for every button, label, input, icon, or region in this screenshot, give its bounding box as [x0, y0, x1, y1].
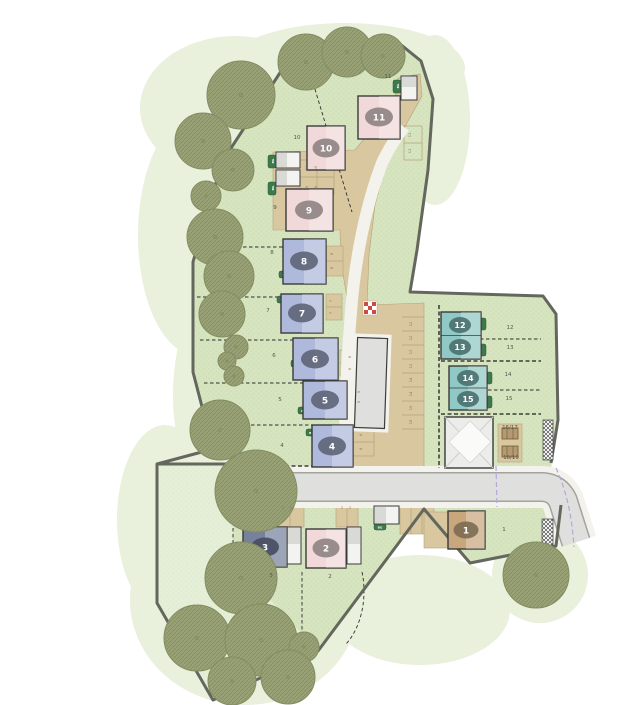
svg-text:5: 5 — [357, 401, 361, 403]
garden-label: 8 — [270, 250, 274, 256]
house-plot-6: 6 — [293, 338, 338, 380]
house-plots-12-13: 12 13 — [441, 312, 481, 359]
plot-number: 11 — [373, 114, 386, 124]
svg-text:13: 13 — [409, 350, 413, 355]
svg-text:2: 2 — [341, 506, 343, 510]
house-plot-8: 8 — [283, 239, 326, 284]
svg-text:2: 2 — [323, 545, 329, 555]
garden-label: 2 — [328, 574, 332, 580]
garden-label: 18/19 — [503, 455, 519, 461]
svg-text:11: 11 — [408, 133, 412, 138]
svg-text:8: 8 — [301, 258, 307, 268]
garage — [276, 170, 300, 186]
site-plan-drawing: BG BG BG BG BG BG BG BG BG BG BG 11 — [0, 0, 640, 705]
store: BG — [393, 80, 401, 93]
svg-text:9: 9 — [306, 207, 312, 217]
svg-text:7: 7 — [299, 310, 305, 320]
svg-text:15: 15 — [462, 395, 474, 404]
garden-label: 5 — [278, 397, 282, 403]
svg-text:12: 12 — [409, 322, 413, 327]
svg-text:13: 13 — [409, 364, 413, 369]
garden-label: 13 — [507, 345, 514, 351]
svg-text:12: 12 — [409, 336, 413, 341]
svg-text:BG: BG — [271, 185, 275, 190]
svg-text:14: 14 — [409, 391, 413, 396]
hatch-strip-road-exit — [542, 519, 553, 545]
tree — [190, 400, 250, 460]
svg-text:3: 3 — [282, 506, 284, 510]
svg-text:10: 10 — [305, 165, 309, 170]
garage — [276, 152, 300, 168]
site-plan: BG BG BG BG BG BG BG BG BG BG BG 11 — [0, 0, 640, 705]
garden-label: 9 — [273, 205, 277, 211]
garden-label: 16/17 — [502, 425, 518, 431]
garden-label: 1 — [502, 527, 506, 533]
hatch-strip-east — [543, 420, 553, 460]
house-plots-14-15: 14 15 — [449, 366, 487, 410]
house-plot-9: 9 — [286, 189, 333, 231]
svg-text:14: 14 — [462, 374, 474, 383]
house-plot-7: 7 — [281, 294, 323, 333]
garden-label: 10 — [294, 135, 301, 141]
store: BG — [268, 155, 276, 168]
tree — [361, 34, 405, 78]
house-plot-10: 10 — [307, 126, 345, 170]
store: BG — [268, 182, 276, 195]
svg-text:12: 12 — [454, 321, 465, 330]
house-plot-1: 1 — [448, 511, 485, 549]
house-plot-5: 5 — [303, 381, 347, 419]
tree — [208, 657, 256, 705]
svg-text:5: 5 — [357, 391, 361, 393]
flats-16-19 — [445, 417, 493, 468]
svg-text:1: 1 — [463, 527, 469, 537]
garden-label: 3 — [269, 573, 273, 579]
garden-label: 12 — [507, 325, 514, 331]
svg-text:7: 7 — [329, 312, 333, 314]
svg-text:BG: BG — [396, 83, 400, 88]
garden-label: 15 — [506, 396, 513, 402]
garden-label: 7 — [266, 308, 270, 314]
tree — [261, 650, 315, 704]
garden-label: 4 — [280, 443, 284, 449]
house-plot-11: 11 — [358, 96, 400, 139]
svg-text:6: 6 — [312, 356, 318, 366]
svg-text:2: 2 — [349, 506, 351, 510]
garden-label: 11 — [385, 74, 392, 80]
garage — [347, 527, 361, 564]
svg-text:13: 13 — [454, 343, 465, 352]
tree — [191, 181, 221, 211]
svg-text:BG: BG — [271, 158, 275, 163]
svg-text:15: 15 — [409, 420, 413, 425]
bin-collection-grid — [363, 301, 377, 315]
tree — [224, 366, 244, 386]
garage — [374, 506, 399, 524]
garage — [286, 527, 301, 564]
svg-text:11: 11 — [408, 149, 412, 154]
drive-plot1 — [424, 512, 448, 548]
court-surface — [354, 338, 387, 429]
svg-text:10: 10 — [320, 145, 333, 155]
house-plot-4: 4 — [312, 425, 353, 467]
tree — [215, 450, 297, 532]
svg-text:3: 3 — [290, 506, 292, 510]
tree — [199, 291, 245, 337]
svg-text:BG: BG — [378, 526, 383, 530]
parking-court-shared — [350, 333, 391, 432]
tree — [205, 542, 277, 614]
tree — [503, 542, 569, 608]
garden-label: 14 — [505, 372, 512, 378]
garage — [401, 76, 417, 100]
svg-text:4: 4 — [329, 443, 335, 453]
svg-text:7: 7 — [329, 300, 333, 302]
svg-text:5: 5 — [322, 397, 328, 407]
svg-text:14: 14 — [409, 377, 413, 382]
tree — [212, 149, 254, 191]
svg-text:15: 15 — [409, 406, 413, 411]
store: BG — [374, 524, 386, 530]
house-plot-2: 2 — [306, 529, 346, 568]
garden-label: 6 — [272, 353, 276, 359]
svg-text:10: 10 — [314, 165, 318, 170]
